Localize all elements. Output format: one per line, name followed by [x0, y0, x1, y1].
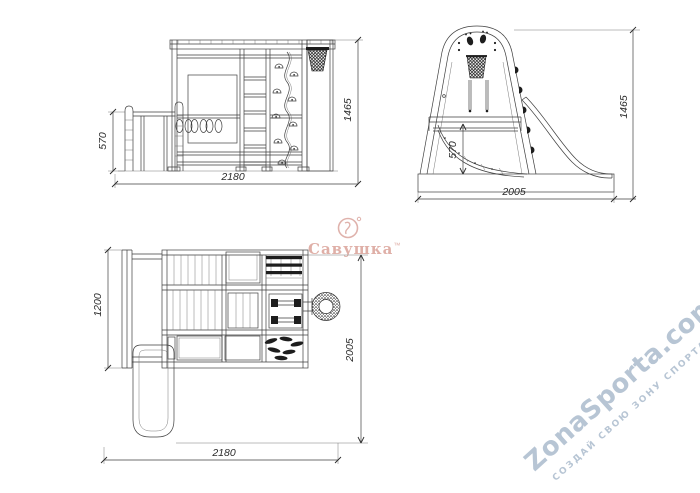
plan-rear-rail [122, 250, 132, 368]
side-platform-height-label: 570 [447, 141, 459, 159]
plan-ladder-box [228, 293, 258, 328]
side-height-label: 1465 [618, 95, 630, 119]
front-slide-height-label: 570 [97, 132, 109, 150]
cross-beams [177, 115, 302, 165]
trapeze-bars [469, 80, 489, 112]
front-width-label: 2180 [220, 171, 245, 183]
dim-front-height: 1465 [335, 37, 363, 184]
side-view: 570 2005 1465 [415, 26, 640, 203]
plan-width-label: 2180 [211, 447, 236, 459]
basketball-hoop [306, 47, 329, 71]
basketball-net-side [466, 56, 487, 78]
dim-side-height: 1465 [514, 27, 640, 202]
plan-top-box [226, 252, 260, 283]
slide-plan [133, 345, 174, 437]
dim-front-slide-height: 570 [97, 109, 125, 174]
dim-side-width: 2005 [415, 186, 636, 203]
plan-dark-rungs [266, 256, 302, 278]
plan-view: 1200 2005 2180 [92, 247, 368, 464]
climb-holds-side [515, 67, 535, 154]
climbing-wall [272, 52, 298, 168]
slide-side [522, 97, 612, 178]
dim-plan-rear: 1200 [92, 247, 122, 371]
plan-frame [162, 250, 308, 368]
front-view: 570 2180 1465 [97, 37, 363, 188]
plan-monkey-rungs [174, 255, 216, 285]
plan-climb-holds [264, 336, 304, 361]
play-panel [188, 75, 237, 143]
front-height-label: 1465 [342, 98, 354, 122]
plan-rear-label: 1200 [92, 293, 104, 317]
plan-frame-lines [162, 250, 308, 368]
dim-front-width: 2180 [112, 171, 361, 188]
plan-floor-slats [173, 290, 215, 330]
platform-beam [429, 117, 521, 131]
plan-depth-label: 2005 [344, 338, 356, 363]
posts [118, 40, 338, 171]
dim-plan-width: 2180 [101, 443, 341, 464]
drawing-canvas: 570 2180 1465 [0, 0, 700, 493]
technical-drawing-sheet: Савушка™ ZonaSporta.com СОЗДАЙ СВОЮ ЗОНУ… [0, 0, 700, 493]
side-width-label: 2005 [501, 186, 526, 198]
dim-side-platform-height: 570 [447, 124, 466, 174]
a-frame [420, 26, 536, 174]
plan-bottom-boxes [168, 336, 260, 360]
basketball-ring-plan [303, 293, 340, 321]
slide-front [125, 102, 183, 171]
plan-ibar-box [269, 294, 302, 328]
